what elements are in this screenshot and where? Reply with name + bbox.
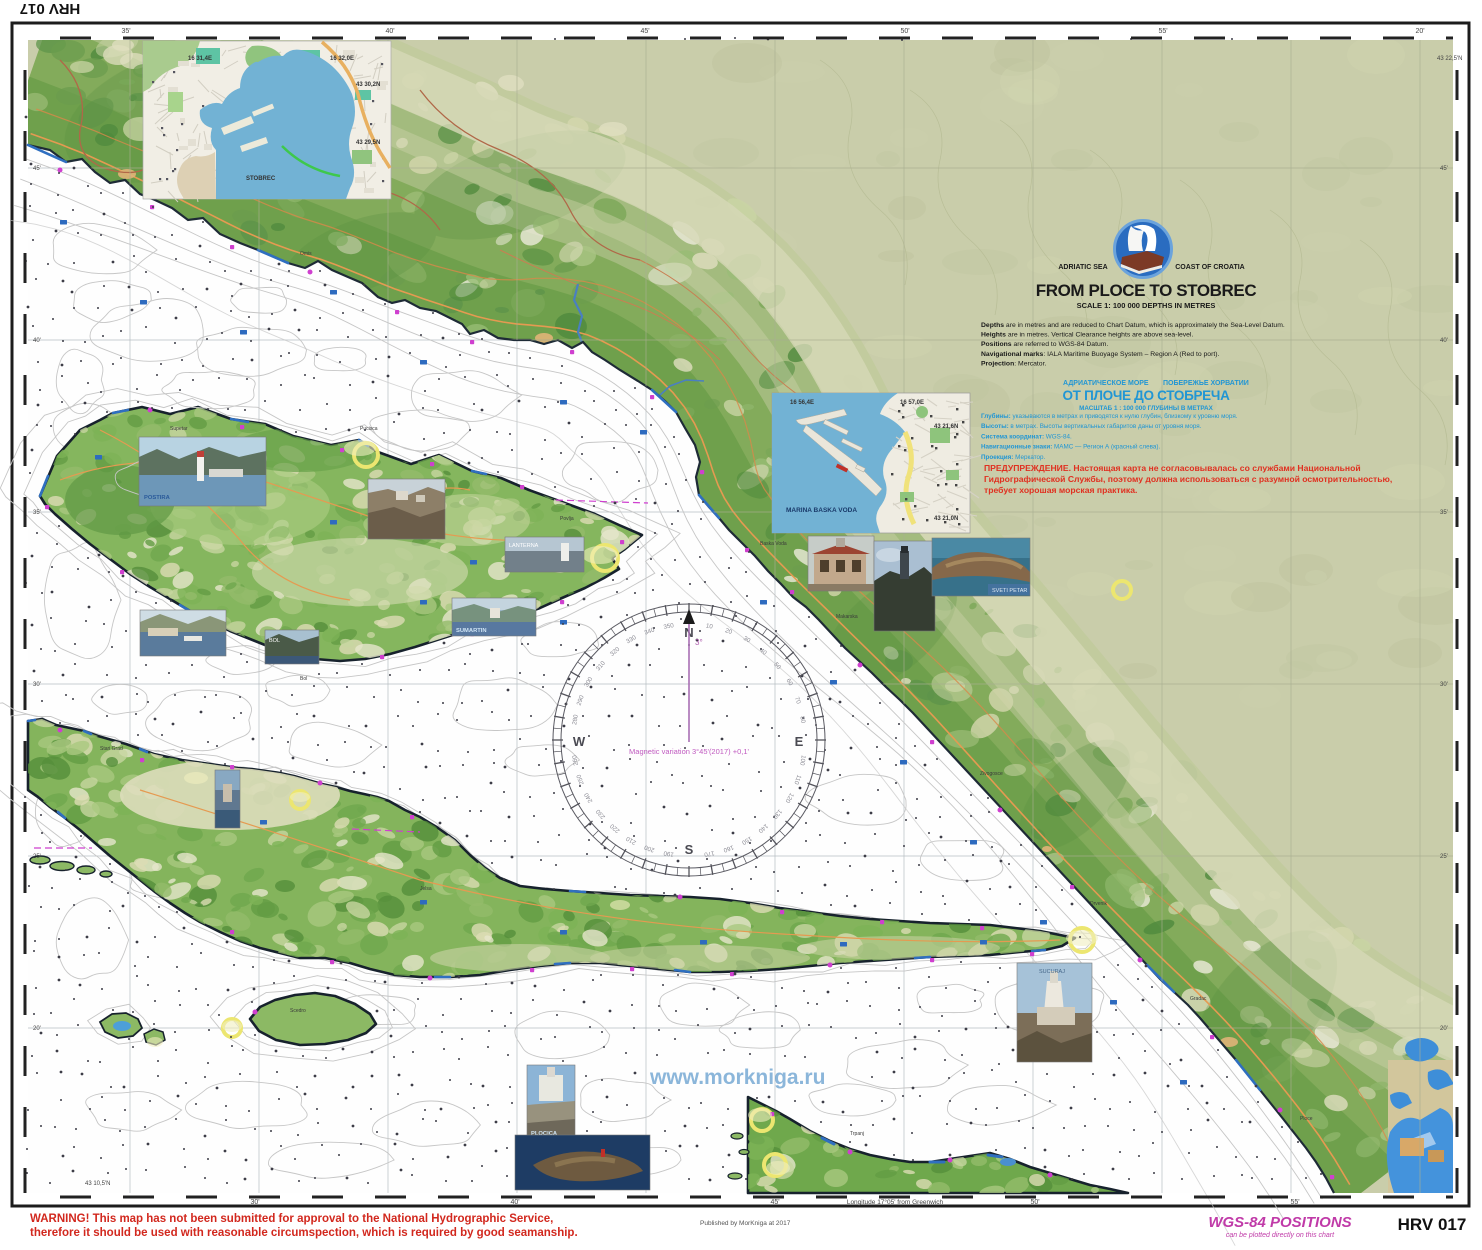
- svg-text:30': 30': [250, 1199, 259, 1206]
- svg-text:16 57,0E: 16 57,0E: [900, 400, 924, 406]
- svg-text:STOBREC: STOBREC: [246, 176, 276, 182]
- svg-text:Magnetic variation 3°45'(2017): Magnetic variation 3°45'(2017) +0,1': [629, 747, 749, 756]
- svg-text:Omis: Omis: [300, 251, 312, 257]
- svg-text:Published by MorKniga at 2017: Published by MorKniga at 2017: [700, 1220, 791, 1227]
- svg-text:50': 50': [1030, 1199, 1039, 1206]
- svg-text:16 32,0E: 16 32,0E: [330, 56, 354, 62]
- svg-text:ADRIATIC SEA: ADRIATIC SEA: [1058, 264, 1107, 271]
- svg-text:HRV 017: HRV 017: [20, 0, 81, 17]
- svg-text:Высоты: в метрах. Высоты верти: Высоты: в метрах. Высоты вертикальных га…: [981, 422, 1202, 430]
- svg-text:45': 45': [1440, 166, 1448, 172]
- svg-text:ОТ ПЛОЧЕ ДО СТОБРЕЧА: ОТ ПЛОЧЕ ДО СТОБРЕЧА: [1062, 388, 1230, 403]
- svg-text:45': 45': [33, 166, 41, 172]
- svg-text:Projection: Mercator.: Projection: Mercator.: [981, 360, 1046, 367]
- svg-text:55': 55': [1290, 1199, 1299, 1206]
- svg-text:Pucisca: Pucisca: [360, 426, 378, 432]
- svg-text:25': 25': [33, 854, 41, 860]
- svg-text:Bol: Bol: [300, 676, 307, 682]
- svg-text:Навигационные знаки: МАМС — Ре: Навигационные знаки: МАМС — Регион А (кр…: [981, 443, 1160, 451]
- svg-text:требует хорошая морская практи: требует хорошая морская практика.: [984, 485, 1137, 495]
- svg-text:Trpanj: Trpanj: [850, 1131, 864, 1137]
- svg-text:55': 55': [1158, 28, 1167, 35]
- svg-text:Povlja: Povlja: [560, 516, 574, 522]
- svg-text:43 21,0N: 43 21,0N: [934, 516, 958, 522]
- svg-text:Longitude 17°05' from Greenwic: Longitude 17°05' from Greenwich: [847, 1198, 944, 1206]
- svg-text:W: W: [573, 734, 586, 749]
- svg-text:FROM PLOCE TO STOBREC: FROM PLOCE TO STOBREC: [1036, 281, 1257, 300]
- svg-text:43 10,5'N: 43 10,5'N: [85, 1181, 111, 1187]
- svg-text:43 30,2N: 43 30,2N: [356, 82, 380, 88]
- svg-text:SVETI PETAR: SVETI PETAR: [992, 588, 1027, 594]
- svg-text:Gradac: Gradac: [1190, 996, 1207, 1002]
- svg-text:Supetar: Supetar: [170, 426, 188, 432]
- svg-text:43 21,6N: 43 21,6N: [934, 424, 958, 430]
- svg-text:Navigational marks: IALA Marit: Navigational marks: IALA Maritime Buoyag…: [981, 351, 1220, 358]
- svg-text:АДРИАТИЧЕСКОЕ МОРЕ: АДРИАТИЧЕСКОЕ МОРЕ: [1063, 380, 1149, 387]
- svg-text:Positions are referred to WGS-: Positions are referred to WGS-84 Datum.: [981, 341, 1108, 348]
- svg-text:Глубины: указываются в метрах: Глубины: указываются в метрах и приводят…: [981, 412, 1238, 420]
- svg-text:40': 40': [385, 28, 394, 35]
- svg-text:E: E: [795, 734, 804, 749]
- svg-text:20': 20': [1440, 1026, 1448, 1032]
- svg-text:ПРЕДУПРЕЖДЕНИЕ. Настоящая карт: ПРЕДУПРЕЖДЕНИЕ. Настоящая карта не согла…: [984, 463, 1361, 473]
- svg-text:SUMARTIN: SUMARTIN: [456, 628, 487, 634]
- svg-text:30': 30': [1440, 682, 1448, 688]
- svg-text:can be plotted directly on thi: can be plotted directly on this chart: [1226, 1232, 1335, 1239]
- svg-text:25': 25': [1440, 854, 1448, 860]
- svg-text:MARINA BASKA VODA: MARINA BASKA VODA: [786, 507, 857, 514]
- svg-text:POSTIRA: POSTIRA: [144, 495, 171, 501]
- svg-text:ПОБЕРЕЖЬЕ ХОРВАТИИ: ПОБЕРЕЖЬЕ ХОРВАТИИ: [1163, 380, 1249, 387]
- svg-text:50': 50': [900, 28, 909, 35]
- svg-text:LANTERNA: LANTERNA: [509, 543, 539, 549]
- svg-text:SCALE 1: 100 000 DEPTHS IN ME: SCALE 1: 100 000 DEPTHS IN METRES: [1077, 301, 1216, 310]
- svg-text:Система координат: WGS-84.: Система координат: WGS-84.: [981, 433, 1072, 440]
- svg-text:Scedro: Scedro: [290, 1008, 306, 1014]
- svg-text:43 22,5'N: 43 22,5'N: [1437, 56, 1463, 62]
- svg-text:40': 40': [510, 1199, 519, 1206]
- svg-text:Jelsa: Jelsa: [420, 886, 432, 892]
- svg-text:Проекция: Меркатор.: Проекция: Меркатор.: [981, 454, 1046, 461]
- svg-text:16 56,4E: 16 56,4E: [790, 400, 814, 406]
- svg-text:40': 40': [1440, 338, 1448, 344]
- svg-text:35': 35': [1440, 510, 1448, 516]
- svg-text:WARNING! This map has not been: WARNING! This map has not been submitted…: [30, 1213, 553, 1225]
- svg-text:35': 35': [121, 28, 130, 35]
- svg-text:S: S: [685, 842, 694, 857]
- svg-text:HRV 017: HRV 017: [1398, 1215, 1467, 1234]
- svg-text:Makarska: Makarska: [836, 614, 858, 620]
- svg-text:45': 45': [770, 1199, 779, 1206]
- svg-text:35': 35': [33, 510, 41, 516]
- svg-text:45': 45': [640, 28, 649, 35]
- svg-text:Heights are in metres. Vertica: Heights are in metres. Vertical Clearanc…: [981, 332, 1193, 339]
- svg-text:SUCURAJ: SUCURAJ: [1039, 969, 1065, 975]
- svg-text:Drvenik: Drvenik: [1090, 901, 1107, 907]
- svg-text:Ploce: Ploce: [1300, 1116, 1313, 1122]
- svg-text:43 29,5N: 43 29,5N: [356, 140, 380, 146]
- svg-text:30': 30': [33, 682, 41, 688]
- svg-text:Гидрографической Службы, поэто: Гидрографической Службы, поэтому должна …: [984, 474, 1392, 484]
- svg-text:Stari Grad: Stari Grad: [100, 746, 123, 752]
- svg-text:therefore it should be used wi: therefore it should be used with reasona…: [30, 1227, 578, 1239]
- svg-text:20': 20': [1415, 28, 1424, 35]
- svg-text:МАСШТАБ 1 : 100 000 ГЛУБИН: МАСШТАБ 1 : 100 000 ГЛУБИНЫ В МЕТРАХ: [1079, 405, 1213, 412]
- svg-text:16 31,4E: 16 31,4E: [188, 56, 212, 62]
- svg-text:3°: 3°: [695, 638, 703, 647]
- svg-text:20': 20': [33, 1026, 41, 1032]
- svg-text:COAST OF CROATIA: COAST OF CROATIA: [1175, 264, 1244, 271]
- svg-text:Zivogosce: Zivogosce: [980, 771, 1003, 777]
- svg-text:www.morkniga.ru: www.morkniga.ru: [649, 1066, 825, 1089]
- svg-text:BOL: BOL: [269, 638, 280, 644]
- svg-text:Baska Voda: Baska Voda: [760, 541, 787, 547]
- svg-text:WGS-84 POSITIONS: WGS-84 POSITIONS: [1208, 1214, 1351, 1231]
- svg-text:Depths are in metres and are r: Depths are in metres and are reduced to …: [981, 322, 1285, 329]
- svg-text:40': 40': [33, 338, 41, 344]
